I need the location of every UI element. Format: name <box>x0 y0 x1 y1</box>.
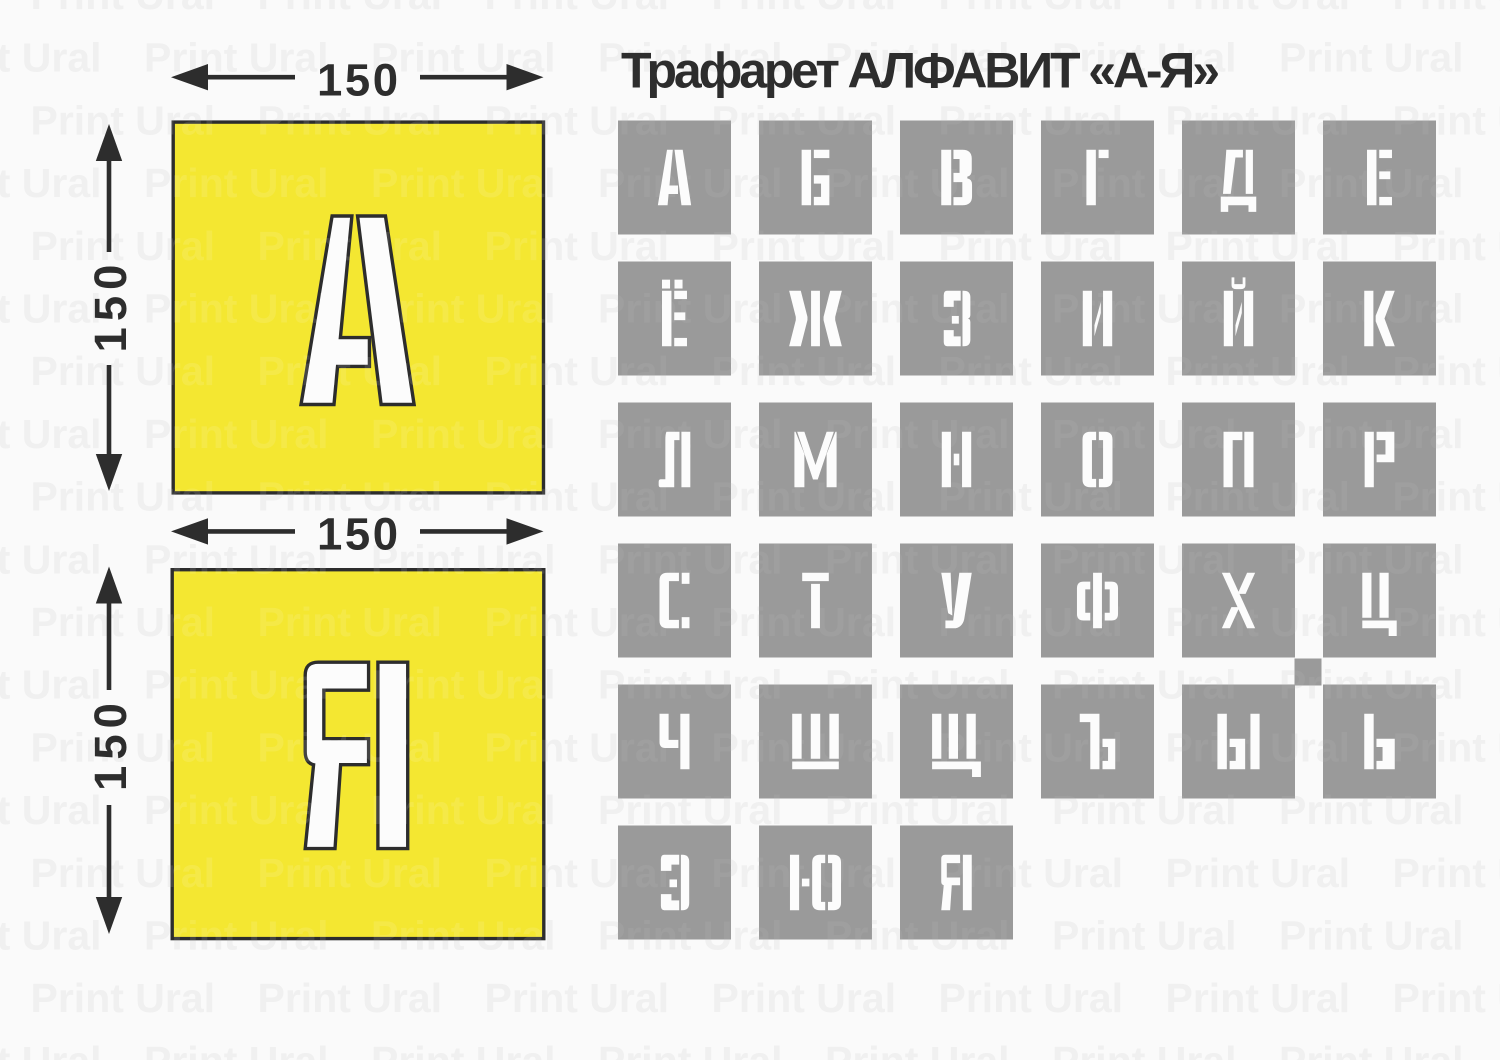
svg-text:Трафарет АЛФАВИТ «А-Я»: Трафарет АЛФАВИТ «А-Я» <box>621 43 1220 99</box>
svg-text:150: 150 <box>317 55 398 106</box>
svg-text:150: 150 <box>317 509 398 560</box>
svg-text:150: 150 <box>85 265 136 353</box>
svg-text:150: 150 <box>85 703 136 791</box>
